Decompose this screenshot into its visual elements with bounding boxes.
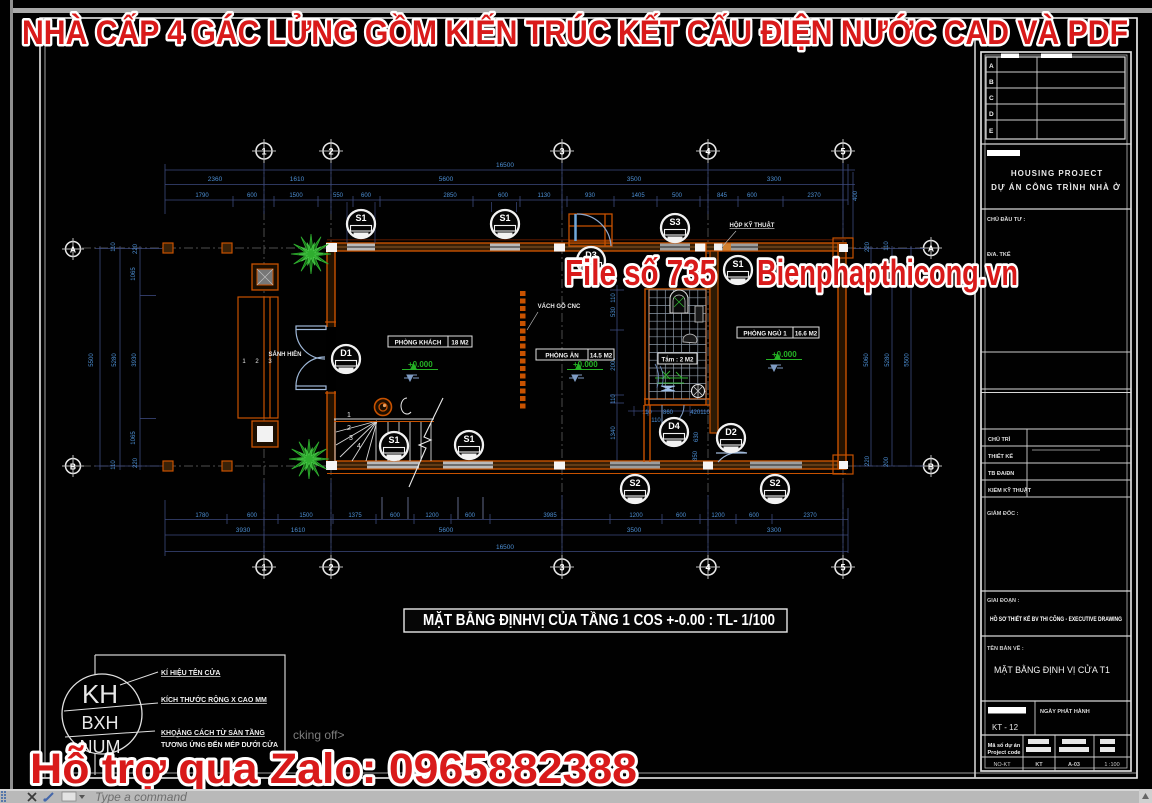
svg-text:KH: KH: [82, 679, 118, 709]
svg-text:S1: S1: [463, 434, 474, 444]
svg-text:PHÒNG NGỦ 1: PHÒNG NGỦ 1: [743, 330, 787, 338]
svg-text:THIẾT KẾ: THIẾT KẾ: [988, 453, 1013, 460]
svg-text:400: 400: [853, 190, 859, 201]
svg-text:MẶT BẰNG ĐỊNHVỊ CỦA TẦNG 1 COS: MẶT BẰNG ĐỊNHVỊ CỦA TẦNG 1 COS +-0.00 : …: [423, 611, 775, 629]
svg-text:1: 1: [347, 412, 351, 419]
svg-text:D: D: [989, 111, 994, 118]
svg-text:HỘP KỸ THUẬT: HỘP KỸ THUẬT: [730, 221, 775, 229]
svg-text:550: 550: [333, 193, 344, 199]
svg-text:14.5 M2: 14.5 M2: [590, 353, 613, 360]
svg-text:3930: 3930: [236, 527, 251, 534]
svg-text:Type a command: Type a command: [95, 790, 187, 803]
svg-text:1200: 1200: [629, 513, 643, 519]
svg-text:860: 860: [663, 410, 674, 416]
svg-text:1065: 1065: [131, 431, 137, 445]
svg-text:600: 600: [747, 193, 758, 199]
svg-text:NHÀ CẤP 4 GÁC LỬNG GỒM KIẾN TR: NHÀ CẤP 4 GÁC LỬNG GỒM KIẾN TRÚC KẾT CẤU…: [22, 14, 1128, 52]
svg-text:200: 200: [884, 456, 890, 467]
svg-text:16500: 16500: [496, 162, 514, 169]
svg-text:1: 1: [261, 147, 266, 157]
svg-text:1340: 1340: [611, 426, 617, 440]
svg-text:110: 110: [611, 394, 617, 404]
svg-text:500: 500: [672, 193, 683, 199]
svg-text:D4: D4: [668, 421, 680, 431]
svg-text:5280: 5280: [885, 353, 891, 367]
svg-text:600: 600: [749, 513, 760, 519]
svg-text:845: 845: [717, 193, 728, 199]
svg-text:3500: 3500: [627, 527, 642, 534]
svg-text:110: 110: [111, 242, 117, 252]
svg-text:S2: S2: [629, 478, 640, 488]
svg-text:5600: 5600: [439, 527, 454, 534]
svg-text:S1: S1: [388, 435, 399, 445]
svg-text:3930: 3930: [132, 353, 138, 367]
svg-text:16.6 M2: 16.6 M2: [795, 331, 818, 338]
svg-text:S1: S1: [499, 213, 510, 223]
svg-text:220: 220: [865, 455, 871, 466]
svg-text:2370: 2370: [803, 513, 817, 519]
svg-text:110: 110: [651, 418, 661, 424]
svg-text:VÁCH GỖ CNC: VÁCH GỖ CNC: [538, 303, 581, 310]
svg-text:Project code: Project code: [987, 750, 1020, 756]
svg-text:5: 5: [840, 563, 845, 573]
svg-text:BXH: BXH: [81, 713, 118, 733]
svg-text:3: 3: [559, 147, 564, 157]
svg-text:1610: 1610: [291, 527, 306, 534]
svg-text:PHÒNG ĂN: PHÒNG ĂN: [545, 352, 579, 360]
svg-text:KÍCH THƯỚC RỘNG X CAO MM: KÍCH THƯỚC RỘNG X CAO MM: [161, 695, 267, 704]
svg-text:2: 2: [328, 147, 333, 157]
svg-text:1610: 1610: [290, 176, 305, 183]
svg-text:HOUSING PROJECT: HOUSING PROJECT: [1011, 169, 1103, 178]
svg-text:18 M2: 18 M2: [451, 340, 469, 347]
svg-text:B: B: [928, 462, 934, 472]
svg-text:220: 220: [133, 243, 139, 254]
svg-text:CHỦ ĐẦU TƯ :: CHỦ ĐẦU TƯ :: [987, 216, 1025, 223]
svg-text:KIỂM KỸ THUẬT: KIỂM KỸ THUẬT: [988, 487, 1032, 494]
svg-text:220: 220: [133, 457, 139, 468]
svg-text:1500: 1500: [289, 193, 303, 199]
svg-text:5500: 5500: [905, 353, 911, 367]
svg-text:600: 600: [676, 513, 687, 519]
svg-text:5060: 5060: [864, 353, 870, 367]
svg-text:3300: 3300: [767, 527, 782, 534]
svg-text:16500: 16500: [496, 544, 514, 551]
svg-text:2: 2: [347, 425, 351, 432]
svg-text:4: 4: [705, 147, 710, 157]
svg-text:600: 600: [465, 513, 476, 519]
svg-text:Bienphapthicong.vn: Bienphapthicong.vn: [757, 252, 1018, 293]
svg-text:3: 3: [559, 563, 564, 573]
svg-text:1 :100: 1 :100: [1104, 762, 1119, 768]
svg-text:420110: 420110: [690, 410, 710, 416]
svg-text:Hỗ trợ qua Zalo: 0965882388: Hỗ trợ qua Zalo: 0965882388: [30, 744, 637, 793]
svg-text:3985: 3985: [543, 513, 557, 519]
svg-text:1: 1: [261, 563, 266, 573]
svg-text:1780: 1780: [195, 513, 209, 519]
svg-text:600: 600: [247, 513, 258, 519]
svg-text:220: 220: [865, 241, 871, 252]
svg-text:2360: 2360: [208, 176, 223, 183]
svg-text:DỰ ÁN CÔNG TRÌNH NHÀ Ở: DỰ ÁN CÔNG TRÌNH NHÀ Ở: [991, 183, 1121, 192]
svg-text:4: 4: [357, 443, 361, 450]
svg-text:NGÀY PHÁT HÀNH: NGÀY PHÁT HÀNH: [1040, 708, 1090, 715]
svg-text:5500: 5500: [89, 353, 95, 367]
svg-text:MẶT BẰNG ĐỊNH VỊ CỬA T1: MẶT BẰNG ĐỊNH VỊ CỬA T1: [994, 664, 1110, 676]
svg-text:5: 5: [840, 147, 845, 157]
svg-text:600: 600: [498, 193, 509, 199]
svg-text:cking off>: cking off>: [293, 728, 344, 742]
svg-text:D2: D2: [725, 427, 737, 437]
svg-text:SẢNH HIÊN: SẢNH HIÊN: [268, 350, 301, 358]
svg-text:1200: 1200: [711, 513, 725, 519]
svg-text:110: 110: [111, 460, 117, 470]
svg-text:S3: S3: [669, 217, 680, 227]
svg-text:3: 3: [349, 435, 353, 442]
svg-text:D1: D1: [340, 348, 352, 358]
svg-text:1065: 1065: [131, 267, 137, 281]
svg-text:Mã số dự án: Mã số dự án: [988, 742, 1021, 749]
svg-text:A: A: [70, 245, 76, 255]
svg-text:HỒ SƠ THIẾT KẾ BV THI CÔNG - E: HỒ SƠ THIẾT KẾ BV THI CÔNG - EXECUTIVE D…: [990, 615, 1122, 623]
svg-text:1130: 1130: [538, 193, 552, 199]
svg-text:GIÁM ĐỐC :: GIÁM ĐỐC :: [987, 510, 1019, 517]
svg-text:600: 600: [361, 193, 372, 199]
svg-text:110: 110: [611, 293, 617, 303]
svg-text:2: 2: [328, 563, 333, 573]
svg-text:TÊN BẢN VẼ :: TÊN BẢN VẼ :: [987, 644, 1024, 652]
svg-text:GIAI ĐOẠN :: GIAI ĐOẠN :: [987, 598, 1020, 604]
svg-text:600: 600: [247, 193, 258, 199]
svg-text:E: E: [989, 128, 994, 135]
svg-text:2370: 2370: [807, 193, 821, 199]
svg-text:B: B: [70, 462, 76, 472]
svg-text:930: 930: [585, 193, 596, 199]
svg-text:NO-KT: NO-KT: [993, 762, 1011, 768]
svg-text:PHÒNG KHÁCH: PHÒNG KHÁCH: [395, 339, 442, 347]
svg-text:1500: 1500: [299, 513, 313, 519]
svg-text:KT - 12: KT - 12: [992, 723, 1019, 732]
svg-text:600: 600: [390, 513, 401, 519]
svg-text:5600: 5600: [439, 176, 454, 183]
svg-text:Tắm : 2 M2: Tắm : 2 M2: [662, 357, 695, 364]
svg-text:B: B: [989, 79, 994, 86]
svg-text:4: 4: [705, 563, 710, 573]
svg-text:S2: S2: [769, 478, 780, 488]
svg-text:850: 850: [693, 450, 699, 461]
svg-text:3300: 3300: [767, 176, 782, 183]
svg-text:1405: 1405: [631, 193, 645, 199]
svg-text:5280: 5280: [112, 353, 118, 367]
svg-text:S1: S1: [732, 259, 743, 269]
svg-text:KÍ HIỆU TÊN CỬA: KÍ HIỆU TÊN CỬA: [161, 668, 220, 677]
svg-text:C: C: [989, 95, 994, 102]
svg-text:S1: S1: [355, 213, 366, 223]
svg-text:1790: 1790: [195, 193, 209, 199]
svg-text:TB ĐA/ĐN: TB ĐA/ĐN: [988, 471, 1014, 477]
svg-text:110: 110: [884, 241, 890, 251]
svg-text:KT: KT: [1035, 762, 1043, 768]
svg-text:A: A: [989, 63, 994, 70]
svg-text:CHỦ TRÌ: CHỦ TRÌ: [988, 435, 1011, 443]
svg-text:530: 530: [611, 306, 617, 317]
svg-text:3500: 3500: [627, 176, 642, 183]
svg-text:630: 630: [694, 431, 700, 442]
svg-text:A-03: A-03: [1068, 762, 1080, 768]
svg-text:File số 735: File số 735: [565, 252, 716, 293]
svg-text:1200: 1200: [425, 513, 439, 519]
svg-text:2850: 2850: [443, 193, 457, 199]
svg-text:<: <: [172, 728, 179, 742]
svg-text:1375: 1375: [348, 513, 362, 519]
